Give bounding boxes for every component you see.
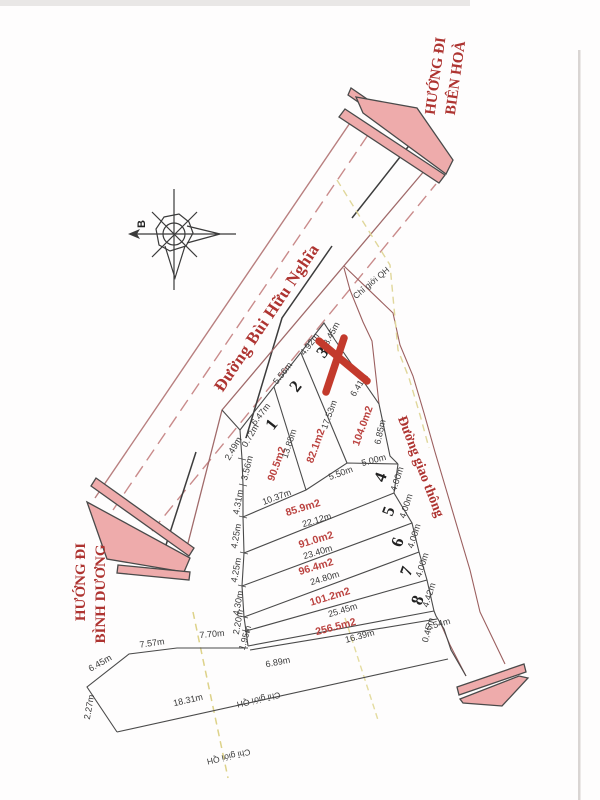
svg-text:B: B: [136, 220, 148, 228]
svg-text:BÌNH DƯƠNG: BÌNH DƯƠNG: [92, 544, 109, 643]
svg-text:HƯỚNG ĐI: HƯỚNG ĐI: [72, 543, 89, 621]
